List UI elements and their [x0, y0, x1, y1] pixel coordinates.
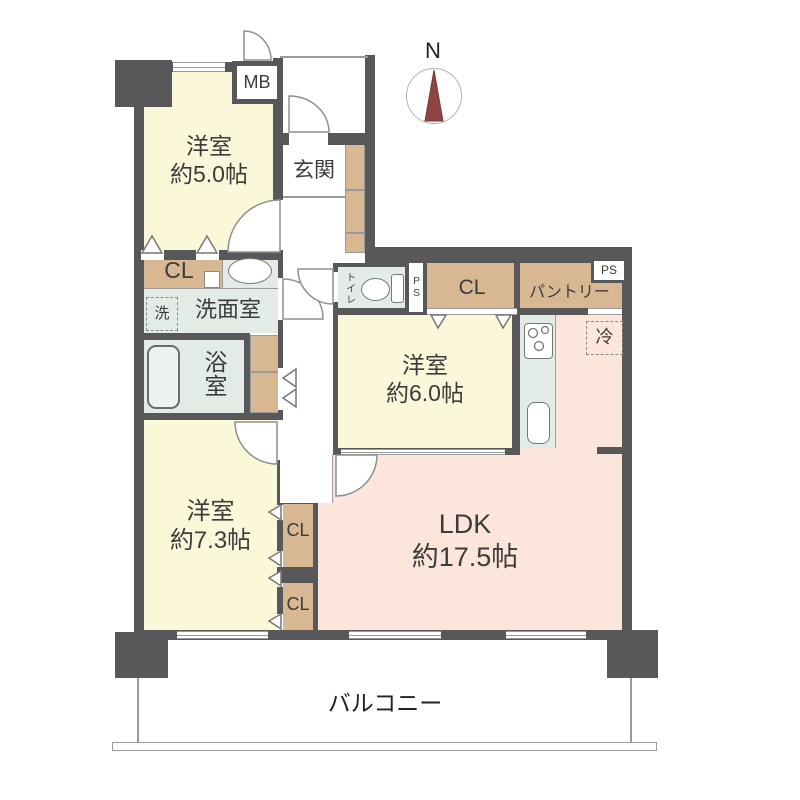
bathtub — [147, 345, 180, 409]
wall-left-outer — [134, 62, 144, 640]
window-line — [173, 67, 225, 68]
ps-corner-label: PS — [601, 263, 617, 278]
compass-circle — [406, 68, 462, 124]
window-line — [341, 452, 505, 453]
bifold-marker-bath-2 — [283, 389, 296, 407]
ps-hall-label-wrap: PS — [408, 270, 424, 306]
room7-size: 約7.3帖 — [170, 526, 251, 555]
ps-corner-box: PS — [591, 258, 627, 283]
toilet-label: トイレ — [341, 267, 356, 309]
closet-mid-text: CL — [459, 275, 486, 301]
wall-cl1-right — [313, 504, 318, 567]
balcony-text: バルコニー — [328, 689, 443, 717]
bath-text: 浴室 — [200, 350, 228, 398]
hallway-end-floor — [280, 455, 333, 503]
bath-label: 浴室 — [200, 342, 228, 406]
porch-edge-line — [280, 56, 368, 58]
window-room5-top — [173, 62, 225, 72]
balcony-rail-left — [137, 678, 139, 744]
entry-door-opening — [289, 133, 328, 145]
wall-hall-left-b — [278, 320, 283, 368]
ps-hall-label: PS — [410, 276, 422, 300]
genkan-text: 玄関 — [293, 158, 335, 184]
ldk-size: 約17.5帖 — [412, 541, 519, 574]
genkan-step-line — [283, 196, 345, 198]
sliding-door-room6-ldk — [341, 449, 505, 455]
floor-plan: MB 洗 冷 PS PS N 洋室 約5.0帖 玄関 CL 洗面室 浴室 トイレ… — [0, 0, 800, 800]
meter-box-label: MB — [244, 72, 271, 94]
meter-box: MB — [232, 61, 282, 104]
wall-washroom-bath — [134, 333, 250, 340]
closet-hall2-text: CL — [286, 594, 309, 616]
genkan-label: 玄関 — [283, 148, 345, 194]
door-arc-entry — [289, 96, 329, 132]
kitchen-sink — [527, 402, 550, 444]
washroom-text: 洗面室 — [195, 297, 261, 324]
room5-size: 約5.0帖 — [170, 160, 248, 188]
room5-name: 洋室 — [186, 132, 232, 160]
wall-hall-left-a — [278, 253, 283, 278]
wall-toilet-left-a — [333, 263, 338, 272]
balcony-outer-ledge — [112, 742, 657, 751]
closet-hall1-label: CL — [283, 518, 313, 544]
genkan-cabinet-top — [345, 138, 365, 190]
pillar-bottom-left — [115, 632, 168, 678]
genkan-cabinet-bottom — [345, 233, 365, 253]
wall-genkan-right — [365, 55, 375, 263]
wall-bath-chase — [244, 340, 250, 413]
window-line — [177, 635, 268, 636]
room7-name: 洋室 — [187, 497, 235, 526]
compass-north-label: N — [417, 38, 449, 64]
window-balcony-ldk2 — [506, 631, 586, 639]
room7-label: 洋室 約7.3帖 — [144, 488, 277, 564]
wall-right-outer — [622, 247, 632, 640]
closet-hall2-label: CL — [283, 592, 313, 618]
window-line — [349, 635, 441, 636]
washing-machine-space: 洗 — [146, 297, 178, 331]
ldk-label: LDK 約17.5帖 — [340, 508, 590, 574]
balcony-label: バルコニー — [285, 688, 485, 718]
opening-bath-door — [278, 368, 283, 410]
door-arc-washroom — [283, 279, 323, 319]
room5-label: 洋室 約5.0帖 — [144, 122, 274, 198]
wall-cl-mid-divider — [277, 567, 318, 583]
washing-machine-label: 洗 — [154, 305, 169, 323]
bifold-marker-bath-1 — [283, 369, 296, 387]
wall-bath-room7 — [134, 413, 283, 420]
toilet-bowl — [361, 278, 390, 301]
toilet-text: トイレ — [342, 272, 354, 305]
refrigerator-space: 冷 — [586, 321, 623, 355]
wall-room6-kitchen — [512, 315, 520, 448]
wall-stub-ldk — [597, 447, 622, 454]
room6-size: 約6.0帖 — [386, 379, 464, 407]
closet-upper-label: CL — [148, 256, 210, 284]
genkan-cabinet-mid — [345, 190, 365, 233]
door-arc-mb — [244, 31, 271, 60]
room6-name: 洋室 — [402, 351, 448, 379]
refrigerator-label: 冷 — [596, 327, 614, 349]
closet-upper-text: CL — [164, 256, 193, 284]
balcony-rail-right — [630, 678, 632, 744]
toilet-tank — [391, 274, 404, 303]
pantry-label: パントリー — [517, 282, 622, 304]
opening-closet-mid — [427, 308, 517, 315]
window-pantry-bottom — [588, 308, 622, 315]
window-line — [506, 635, 586, 636]
window-balcony-ldk1 — [349, 631, 441, 639]
window-balcony-room7 — [177, 631, 268, 639]
pantry-text: パントリー — [529, 283, 610, 303]
compass-n-text: N — [425, 38, 441, 65]
closet-hall1-text: CL — [286, 520, 309, 542]
washroom-label: 洗面室 — [180, 297, 276, 323]
pillar-bottom-right — [607, 632, 658, 678]
closet-mid-label: CL — [427, 274, 517, 302]
door-arc-toilet — [298, 269, 333, 304]
ldk-name: LDK — [439, 508, 492, 541]
vanity-sink-basin — [228, 258, 272, 284]
wall-service-bottom-b — [517, 308, 588, 315]
room6-label: 洋室 約6.0帖 — [338, 343, 512, 415]
wall-cl2-right — [313, 583, 318, 630]
kitchen-stove — [524, 323, 553, 359]
